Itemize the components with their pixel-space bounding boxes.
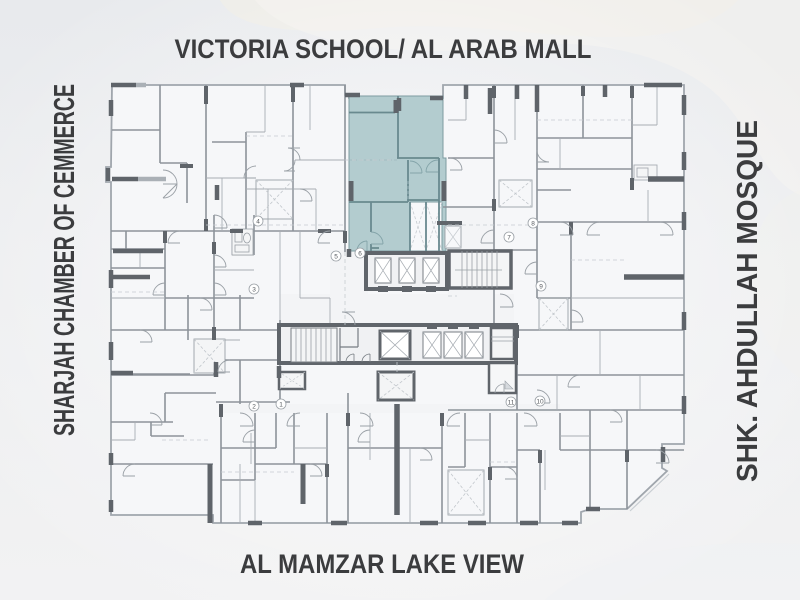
svg-text:4: 4 — [256, 219, 260, 226]
svg-text:5: 5 — [334, 254, 338, 261]
svg-text:11: 11 — [508, 400, 515, 407]
svg-text:AL MAMZAR LAKE VIEW: AL MAMZAR LAKE VIEW — [240, 549, 524, 579]
svg-text:VICTORIA SCHOOL/ AL ARAB MALL: VICTORIA SCHOOL/ AL ARAB MALL — [175, 34, 592, 64]
svg-text:9: 9 — [539, 284, 543, 291]
svg-text:7: 7 — [507, 235, 511, 242]
svg-text:SHARJAH CHAMBER OF CEMMERCE: SHARJAH CHAMBER OF CEMMERCE — [49, 84, 81, 436]
svg-text:6: 6 — [358, 251, 362, 258]
svg-text:8: 8 — [531, 221, 535, 228]
svg-text:SHK. AHDULLAH MOSQUE: SHK. AHDULLAH MOSQUE — [732, 120, 764, 482]
svg-text:3: 3 — [252, 287, 256, 294]
svg-text:1: 1 — [279, 402, 283, 409]
svg-text:10: 10 — [536, 399, 544, 406]
svg-text:2: 2 — [252, 404, 256, 411]
